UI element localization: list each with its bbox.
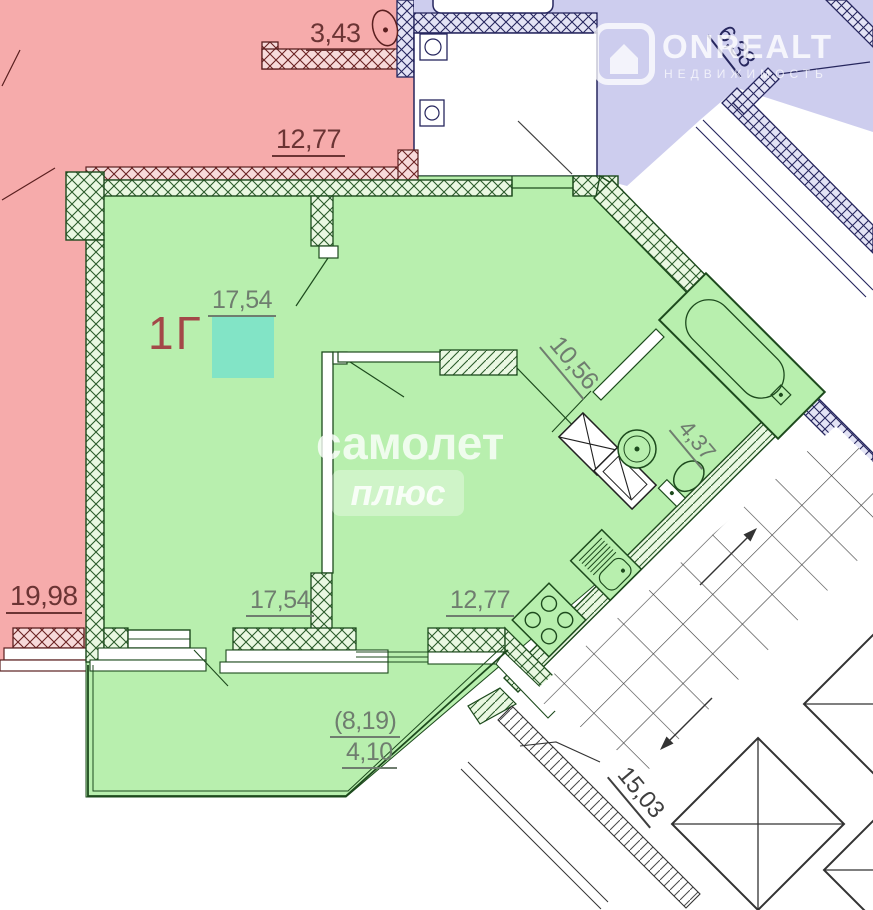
unit-label: 1Г	[148, 310, 203, 356]
floor-plan: 3,43 12,77 6,38 1Г 17,54 10,56 4,37 19,9…	[0, 0, 873, 910]
dim-label-pink-bath: 3,43	[306, 20, 365, 51]
watermark-onrealt-subtitle: НЕДВИЖИМОСТЬ	[664, 68, 828, 80]
watermark-plus-badge: плюс	[332, 470, 464, 516]
dim-label-living-area: 17,54	[208, 288, 276, 317]
watermark-plus: плюс	[350, 475, 445, 511]
area-highlight-square	[212, 316, 274, 378]
dim-label-living-width: 17,54	[246, 588, 314, 617]
washbasin-icon	[618, 430, 656, 468]
dim-label-pink-room-top: 12,77	[272, 126, 345, 157]
dim-label-kitchen: 12,77	[446, 588, 514, 617]
watermark-samolet: самолет	[316, 420, 504, 466]
watermark-onrealt: ONREALT	[662, 30, 833, 63]
dim-label-balcony-reduced: 4,10	[342, 740, 397, 769]
bathtub-icon	[433, 0, 553, 13]
dim-label-balcony-full: (8,19)	[330, 709, 400, 738]
dim-label-pink-room-left: 19,98	[6, 582, 82, 614]
